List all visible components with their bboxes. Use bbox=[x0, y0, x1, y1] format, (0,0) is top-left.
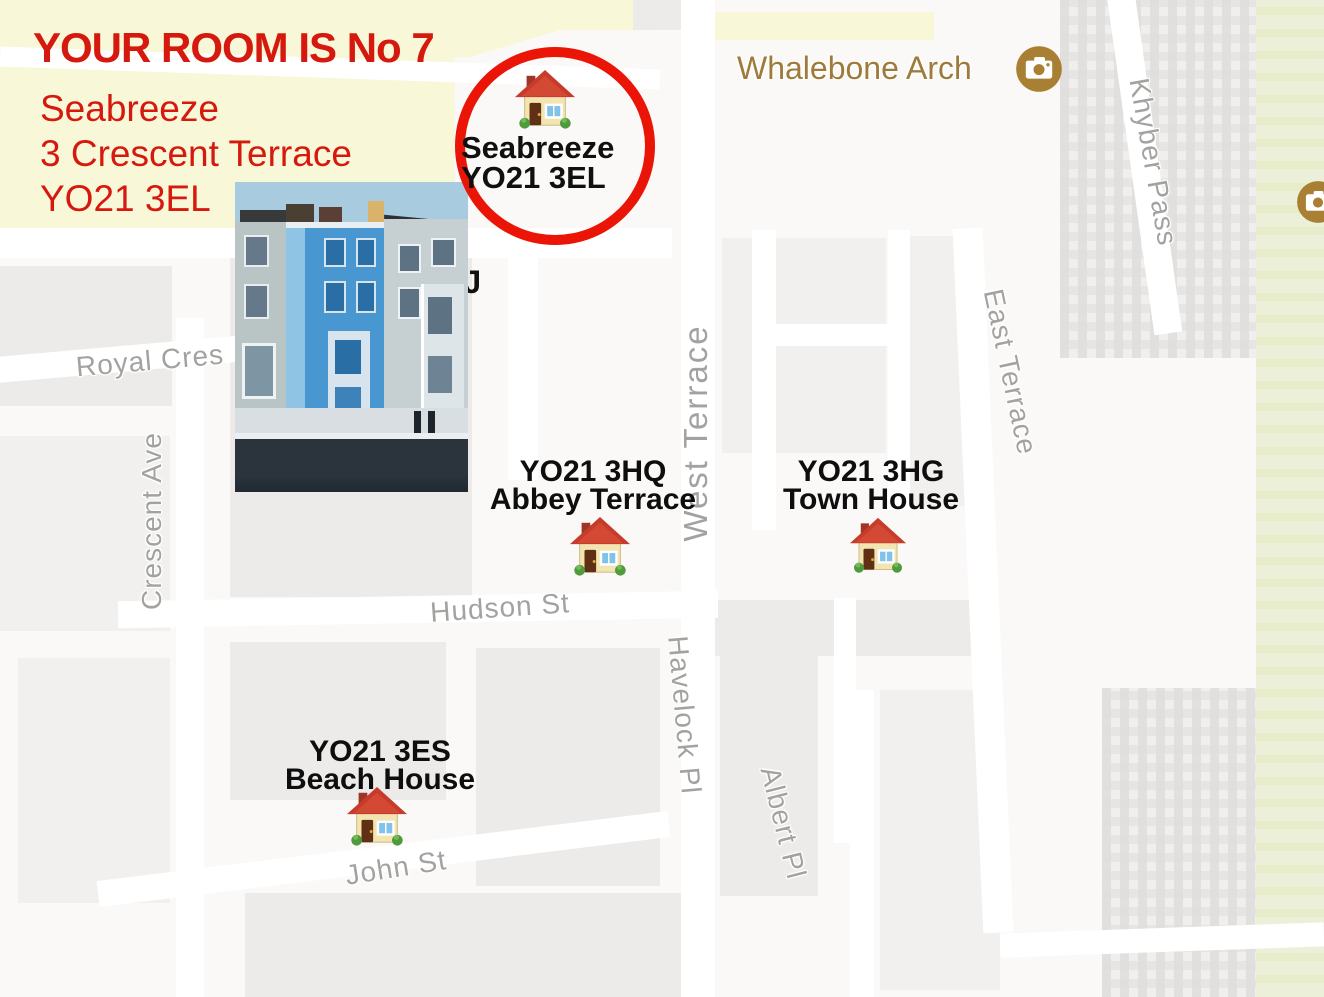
address-line-3: YO21 3EL bbox=[40, 176, 352, 221]
highlight-postcode: YO21 3EL bbox=[461, 163, 614, 193]
photo-window bbox=[356, 238, 376, 267]
street-minor bbox=[508, 230, 538, 480]
photo-road bbox=[235, 439, 468, 492]
property-label-abbey-terrace: YO21 3HQ Abbey Terrace bbox=[468, 458, 718, 514]
room-title: YOUR ROOM IS No 7 bbox=[33, 24, 434, 72]
photo-window bbox=[356, 281, 376, 313]
property-postcode: YO21 3HG bbox=[746, 458, 996, 486]
map-block bbox=[633, 0, 681, 30]
photo-figure bbox=[428, 411, 435, 433]
photo-window bbox=[335, 340, 361, 374]
house-icon-abbey-terrace[interactable] bbox=[569, 516, 631, 583]
room-address: Seabreeze 3 Crescent Terrace YO21 3EL bbox=[40, 86, 352, 221]
poi-icon-partial[interactable] bbox=[1296, 180, 1324, 229]
address-line-2: 3 Crescent Terrace bbox=[40, 131, 352, 176]
house-icon-seabreeze[interactable] bbox=[514, 68, 576, 137]
seabreeze-photo bbox=[235, 182, 468, 492]
street-label-crescent-ave: Crescent Ave bbox=[136, 421, 168, 621]
photo-window bbox=[398, 287, 421, 319]
photo-window bbox=[431, 238, 456, 267]
address-line-1: Seabreeze bbox=[40, 86, 352, 131]
house-icon-town-house[interactable] bbox=[849, 517, 907, 580]
poi-label-whalebone-arch: Whalebone Arch bbox=[737, 50, 972, 87]
photo-window bbox=[428, 356, 451, 393]
map-block bbox=[245, 893, 685, 997]
photo-window bbox=[324, 281, 347, 313]
highlight-name: Seabreeze bbox=[461, 133, 614, 163]
property-label-town-house: YO21 3HG Town House bbox=[746, 458, 996, 514]
photo-window bbox=[244, 284, 269, 319]
seafront-zone bbox=[706, 12, 934, 40]
photo-window bbox=[324, 238, 347, 267]
photo-building-face bbox=[286, 225, 305, 423]
map-block bbox=[18, 658, 170, 903]
camera-icon[interactable] bbox=[1015, 45, 1063, 98]
property-name: Abbey Terrace bbox=[468, 486, 718, 514]
map-block bbox=[0, 266, 172, 406]
street-minor bbox=[770, 324, 895, 346]
photo-window bbox=[244, 235, 269, 267]
map-screenshot: Royal Cres Crescent Ave West Terrace Eas… bbox=[0, 0, 1324, 997]
property-postcode: YO21 3ES bbox=[255, 738, 505, 766]
photo-window bbox=[428, 297, 451, 334]
park-strip bbox=[1256, 0, 1324, 997]
photo-cornice bbox=[286, 222, 384, 228]
highlight-label: Seabreeze YO21 3EL bbox=[461, 133, 614, 193]
property-postcode: YO21 3HQ bbox=[468, 458, 718, 486]
property-name: Town House bbox=[746, 486, 996, 514]
photo-window bbox=[242, 343, 276, 399]
house-icon-beach-house[interactable] bbox=[346, 786, 408, 853]
street-label-west-terrace: West Terrace bbox=[677, 253, 715, 613]
photo-window bbox=[398, 244, 421, 273]
street-minor bbox=[834, 598, 856, 843]
photo-figure bbox=[414, 411, 421, 433]
